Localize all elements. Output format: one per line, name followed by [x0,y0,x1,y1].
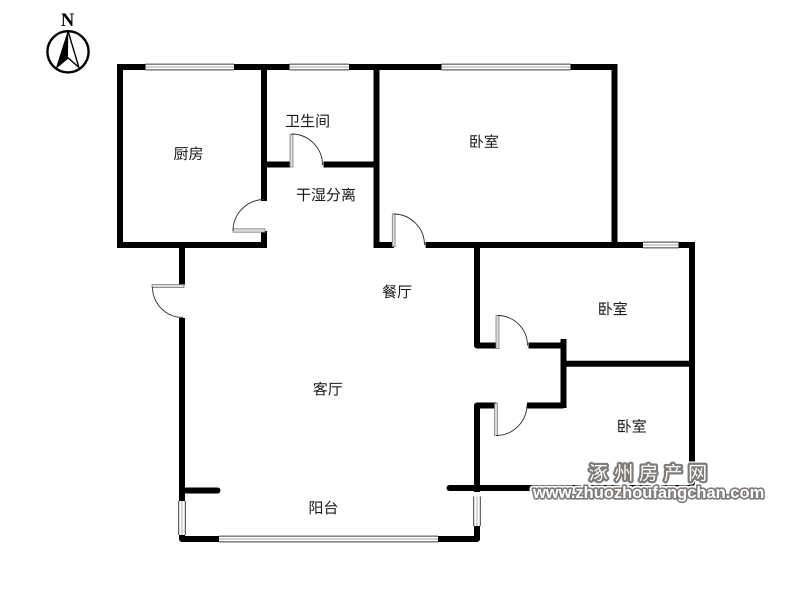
svg-text:N: N [61,11,75,31]
svg-text:www.zhuozhoufangchan.com: www.zhuozhoufangchan.com [532,484,764,502]
